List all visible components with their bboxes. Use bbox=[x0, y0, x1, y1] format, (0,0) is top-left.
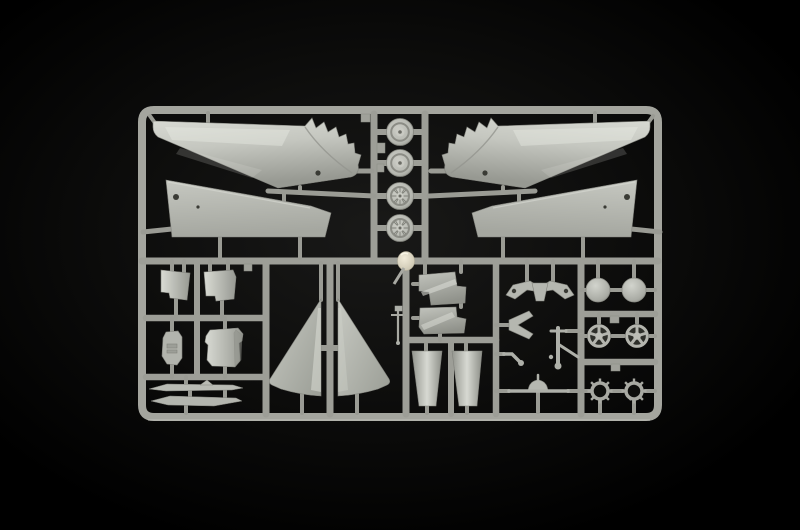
bay-panel-shade bbox=[234, 330, 242, 366]
gate-tab bbox=[361, 114, 370, 122]
bay-door-rib bbox=[167, 350, 177, 353]
strut-knob bbox=[549, 355, 553, 359]
gate-tab bbox=[244, 264, 252, 271]
gate-tab bbox=[610, 316, 619, 323]
gate-tab bbox=[377, 164, 384, 172]
spoked-hub bbox=[587, 324, 611, 348]
hub-cover-disc bbox=[622, 278, 646, 302]
yoke-hole bbox=[512, 289, 516, 293]
panel-hole-large bbox=[173, 194, 179, 200]
sprue-photo-canvas: Grey plastic model-kit sprue with aircra… bbox=[0, 0, 800, 530]
strut-foot bbox=[555, 363, 562, 370]
gate-tab bbox=[377, 143, 385, 153]
panel-hole-small bbox=[196, 205, 199, 208]
spoked-hub bbox=[625, 324, 649, 348]
yoke-hole bbox=[564, 289, 568, 293]
main-wheel-3-treaded bbox=[387, 183, 414, 210]
hub-cover-disc bbox=[586, 278, 610, 302]
main-wheel-4-treaded bbox=[387, 215, 414, 242]
turbine-ring bbox=[588, 379, 613, 404]
probe-upper bbox=[149, 384, 243, 391]
main-wheel-2 bbox=[387, 150, 414, 177]
main-wheel-1 bbox=[387, 119, 414, 146]
retractor-pad bbox=[518, 360, 524, 366]
sprue-photo: Grey plastic model-kit sprue with aircra… bbox=[0, 0, 800, 530]
wing-locating-hole bbox=[315, 170, 320, 175]
bay-door-rib bbox=[167, 344, 177, 348]
gate-tab bbox=[611, 364, 620, 371]
mold-node bbox=[398, 252, 415, 271]
